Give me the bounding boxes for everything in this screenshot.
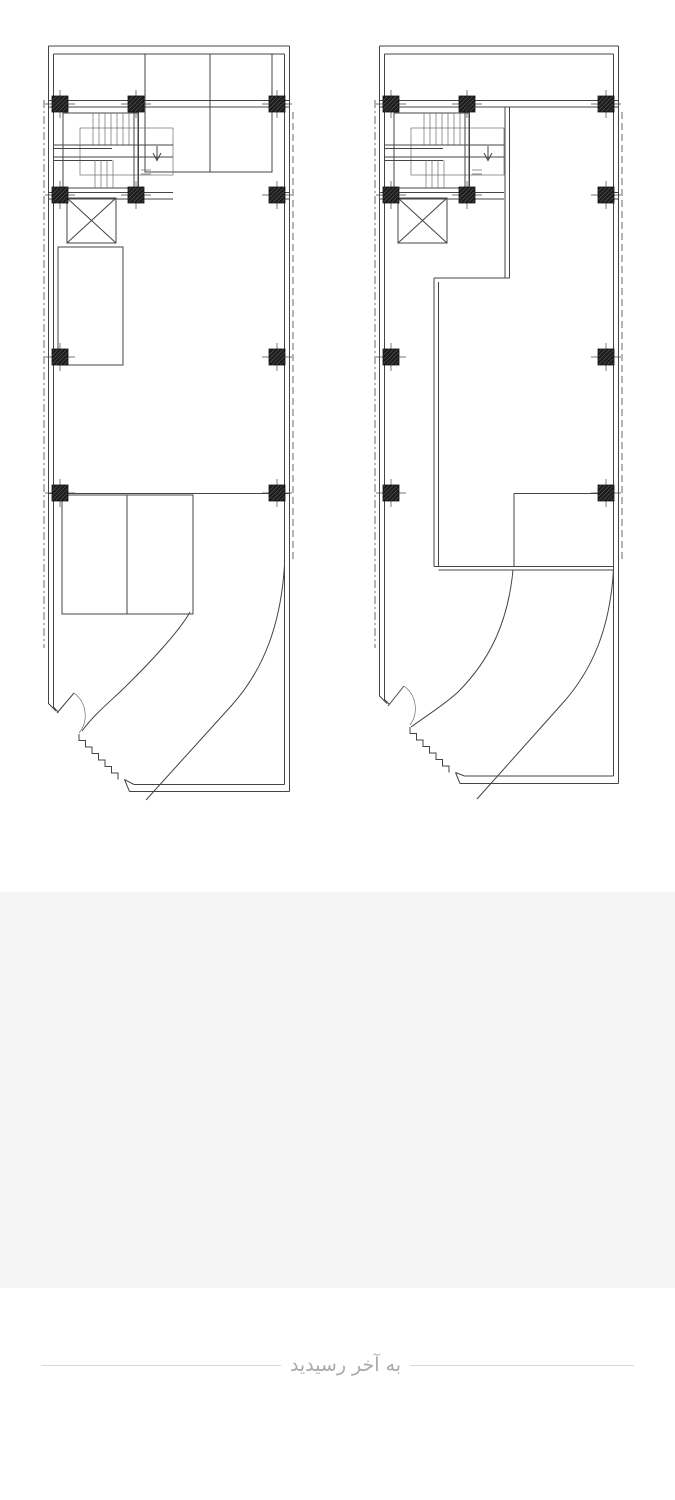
- stair-direction-arrow: [153, 146, 161, 161]
- structural-column: [269, 349, 285, 365]
- structural-column: [269, 485, 285, 501]
- structural-column: [128, 187, 144, 203]
- image-placeholder[interactable]: [0, 892, 675, 1288]
- floor-plan-2[interactable]: [375, 46, 622, 799]
- end-of-list: به آخر رسیدید: [0, 1352, 675, 1378]
- structural-column: [128, 96, 144, 112]
- end-divider-right: [410, 1365, 634, 1366]
- structural-column: [598, 96, 614, 112]
- interior-wall: [434, 107, 614, 570]
- structural-column: [269, 96, 285, 112]
- parking-stalls: [62, 495, 193, 614]
- staircase: [54, 107, 174, 195]
- structural-column: [52, 96, 68, 112]
- floor-plan-1[interactable]: [44, 46, 293, 800]
- structural-column: [459, 96, 475, 112]
- structural-column: [269, 187, 285, 203]
- room-partition: [145, 54, 272, 172]
- structural-column: [459, 187, 475, 203]
- storage-room: [58, 247, 123, 365]
- structural-column: [52, 349, 68, 365]
- page: به آخر رسیدید: [0, 0, 675, 1500]
- staircase: [385, 107, 505, 195]
- entry-steps: [79, 734, 118, 780]
- structural-column: [52, 187, 68, 203]
- structural-column: [383, 485, 399, 501]
- structural-column: [598, 187, 614, 203]
- end-of-list-text: به آخر رسیدید: [290, 1352, 401, 1378]
- entry-steps: [410, 727, 449, 773]
- structural-column: [598, 349, 614, 365]
- ramp: [82, 565, 285, 800]
- structural-column: [598, 485, 614, 501]
- entry-door: [388, 686, 415, 725]
- elevator-shaft: [398, 198, 447, 243]
- end-divider-left: [41, 1365, 281, 1366]
- elevator-shaft: [67, 198, 116, 243]
- floor-plans-image: [0, 0, 675, 840]
- structural-column: [383, 187, 399, 203]
- structural-column: [383, 349, 399, 365]
- entry-door: [57, 693, 85, 733]
- ramp: [411, 570, 614, 799]
- structural-column: [383, 96, 399, 112]
- structural-column: [52, 485, 68, 501]
- room-partition: [514, 494, 614, 567]
- stair-direction-arrow: [484, 146, 492, 161]
